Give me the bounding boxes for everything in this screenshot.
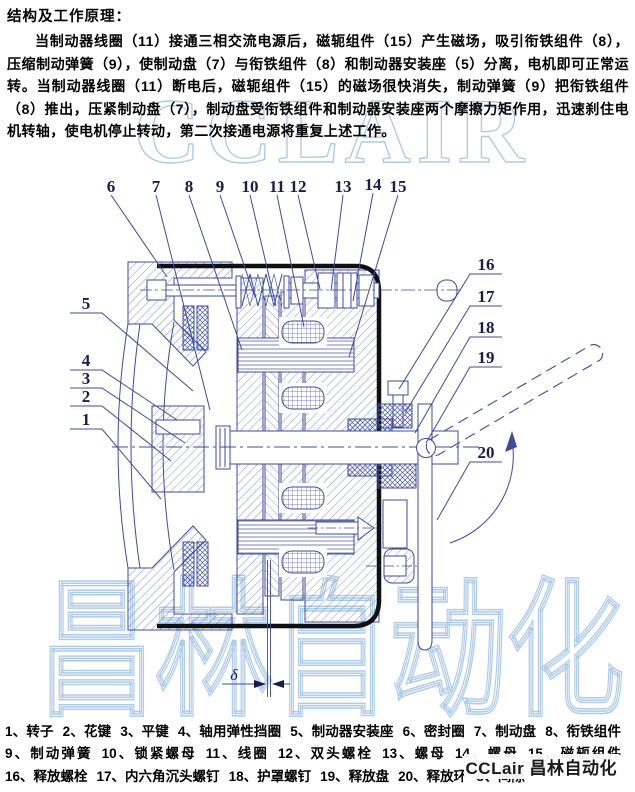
callout-leader-1: [70, 429, 161, 499]
callout-9: 9: [216, 177, 225, 196]
part-item-17: 17、内六角沉头螺钉: [97, 769, 220, 784]
part-item-4: 4、轴用弹性挡圈: [178, 724, 281, 739]
part-item-3: 3、平键: [120, 724, 169, 739]
part-item-20: 20、释放环: [398, 769, 467, 784]
part-item-18: 18、护罩螺钉: [229, 769, 312, 784]
callout-1: 1: [82, 410, 91, 429]
callout-12: 12: [290, 177, 307, 196]
callout-4: 4: [82, 351, 91, 370]
callout-20: 20: [478, 443, 495, 462]
callout-11: 11: [269, 177, 285, 196]
callout-15: 15: [390, 177, 407, 196]
part-item-9: 9、制动弹簧: [5, 746, 93, 761]
part-item-11: 11、线圈: [206, 746, 269, 761]
part-item-8: 8、衔铁组件: [545, 724, 621, 739]
part-item-10: 10、锁紧螺母: [102, 746, 197, 761]
part-item-1: 1、转子: [5, 724, 54, 739]
part-item-13: 13、螺母: [382, 746, 446, 761]
section-title: 结构及工作原理：: [7, 5, 629, 26]
callout-6: 6: [107, 177, 116, 196]
brand-watermark-corner: CCLair 昌林自动化: [464, 754, 619, 779]
delta-symbol: δ: [230, 667, 238, 684]
callout-leader-20: [437, 462, 502, 520]
working-principle-paragraph: 当制动器线圈（11）接通三相交流电源后，磁轭组件（15）产生磁场，吸引衔铁组件（…: [7, 30, 629, 143]
callout-16: 16: [478, 255, 495, 274]
part-item-7: 7、制动盘: [474, 724, 536, 739]
callout-17: 17: [478, 287, 496, 306]
document-page: 结构及工作原理： 当制动器线圈（11）接通三相交流电源后，磁轭组件（15）产生磁…: [0, 0, 635, 792]
part-item-6: 6、密封圈: [403, 724, 465, 739]
callout-10: 10: [242, 177, 259, 196]
part-item-19: 19、释放盘: [320, 769, 389, 784]
callout-19: 19: [478, 348, 495, 367]
callout-14: 14: [365, 175, 383, 194]
callout-2: 2: [82, 387, 91, 406]
callout-8: 8: [185, 177, 194, 196]
part-item-2: 2、花键: [63, 724, 112, 739]
callout-13: 13: [335, 177, 352, 196]
part-item-5: 5、制动器安装座: [290, 724, 393, 739]
callout-18: 18: [478, 318, 495, 337]
part-item-16: 16、释放螺栓: [5, 769, 88, 784]
text-block: 结构及工作原理： 当制动器线圈（11）接通三相交流电源后，磁轭组件（15）产生磁…: [7, 5, 629, 143]
callout-3: 3: [82, 369, 91, 388]
callout-7: 7: [152, 177, 161, 196]
callout-5: 5: [82, 294, 91, 313]
part-item-12: 12、双头螺栓: [278, 746, 373, 761]
